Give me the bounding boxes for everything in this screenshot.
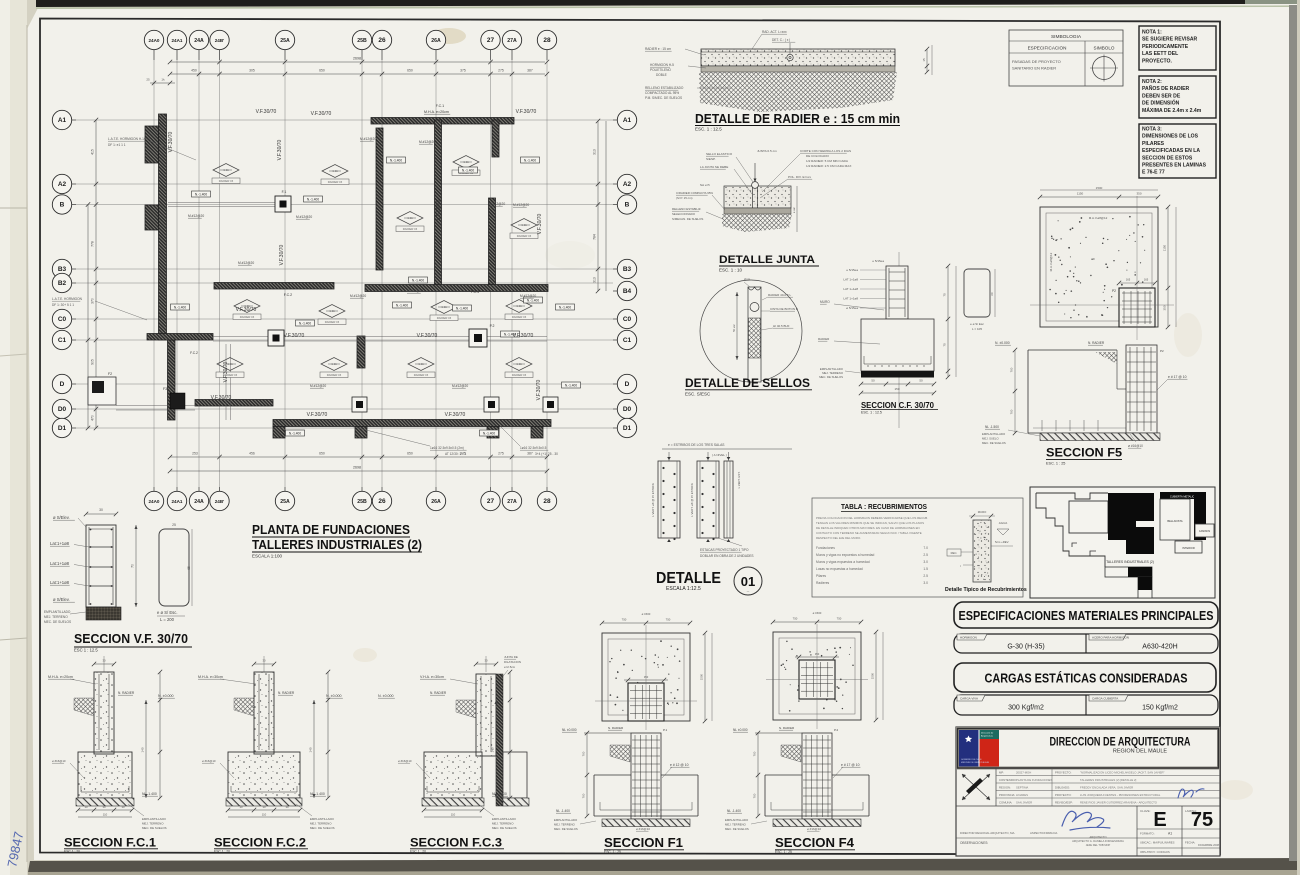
svg-text:P.2: P.2 bbox=[834, 728, 838, 732]
svg-text:B3: B3 bbox=[58, 266, 67, 273]
svg-text:N.-1.400: N.-1.400 bbox=[412, 278, 424, 282]
svg-text:Arquitectura: Arquitectura bbox=[981, 735, 994, 738]
svg-text:SECCION F1: SECCION F1 bbox=[604, 835, 683, 850]
svg-text:253: 253 bbox=[192, 452, 198, 456]
svg-text:S/MECAN. DE SUELOS: S/MECAN. DE SUELOS bbox=[672, 217, 703, 221]
svg-text:ø #16@10: ø #16@10 bbox=[1128, 444, 1143, 448]
svg-text:e var: e var bbox=[792, 207, 796, 213]
svg-text:C0: C0 bbox=[58, 316, 67, 323]
svg-text:140: 140 bbox=[309, 747, 313, 752]
svg-text:M.A.V.ø8@12: M.A.V.ø8@12 bbox=[1089, 216, 1108, 220]
svg-text:CARGA CUBIERTA: CARGA CUBIERTA bbox=[1092, 697, 1118, 701]
svg-text:RADIER 15: RADIER 15 bbox=[219, 179, 234, 183]
svg-text:3+4 (+1) 25 - 30: 3+4 (+1) 25 - 30 bbox=[535, 452, 558, 456]
svg-text:MEJ. TERRENO: MEJ. TERRENO bbox=[725, 823, 747, 827]
svg-text:V.F.30/70: V.F.30/70 bbox=[311, 111, 332, 117]
svg-text:30: 30 bbox=[102, 659, 106, 663]
svg-text:650: 650 bbox=[407, 69, 413, 73]
svg-text:SELLO ELASTICO: SELLO ELASTICO bbox=[706, 152, 733, 156]
svg-text:N.-1.400: N.-1.400 bbox=[565, 383, 577, 387]
svg-text:Muros y vigas expuestos a hume: Muros y vigas expuestos a humedad bbox=[816, 560, 870, 564]
svg-text:V.F.30/70: V.F.30/70 bbox=[307, 412, 328, 418]
svg-text:MP:: MP: bbox=[999, 771, 1004, 775]
svg-text:275: 275 bbox=[498, 452, 504, 456]
svg-text:INTERIOR: INTERIOR bbox=[1182, 546, 1195, 550]
svg-text:DETALLE: DETALLE bbox=[656, 570, 721, 587]
svg-text:PLANTA DE FUNDACIONES: PLANTA DE FUNDACIONES bbox=[252, 522, 410, 537]
svg-text:905: 905 bbox=[91, 359, 95, 365]
svg-text:25B: 25B bbox=[357, 499, 367, 505]
svg-text:SECCION V.F. 30/70: SECCION V.F. 30/70 bbox=[74, 631, 188, 646]
svg-text:D1: D1 bbox=[623, 425, 632, 432]
svg-text:B3: B3 bbox=[623, 266, 632, 273]
svg-text:A1: A1 bbox=[1168, 832, 1172, 836]
svg-text:7.0: 7.0 bbox=[923, 546, 928, 550]
svg-text:DETALLE DE SELLOS: DETALLE DE SELLOS bbox=[685, 378, 810, 390]
svg-text:20027-MOH: 20027-MOH bbox=[1016, 771, 1031, 775]
svg-text:RADIER 40-0.5 L: RADIER 40-0.5 L bbox=[768, 293, 792, 297]
svg-text:REGION:: REGION: bbox=[999, 786, 1011, 790]
svg-text:28: 28 bbox=[543, 37, 551, 44]
svg-text:30: 30 bbox=[121, 805, 125, 809]
svg-text:27: 27 bbox=[487, 498, 495, 505]
svg-text:P.2: P.2 bbox=[490, 324, 495, 328]
svg-text:LAT 1+1ø8: LAT 1+1ø8 bbox=[843, 287, 858, 291]
svg-text:TABLA : RECUBRIMIENTOS: TABLA : RECUBRIMIENTOS bbox=[841, 504, 927, 511]
svg-text:M.#12@20: M.#12@20 bbox=[310, 384, 326, 388]
svg-text:V.H.A. e=30cm: V.H.A. e=30cm bbox=[420, 675, 444, 679]
svg-text:DICIEMBRE 2008: DICIEMBRE 2008 bbox=[1198, 843, 1219, 847]
svg-text:25A: 25A bbox=[280, 38, 290, 44]
svg-text:305: 305 bbox=[249, 69, 255, 73]
svg-text:COMUNA:: COMUNA: bbox=[999, 801, 1012, 805]
svg-text:24A: 24A bbox=[194, 38, 204, 44]
svg-text:26: 26 bbox=[378, 37, 386, 44]
svg-text:ø #16@10: ø #16@10 bbox=[52, 759, 66, 763]
svg-text:N. RADIER: N. RADIER bbox=[1088, 341, 1105, 345]
svg-text:24A: 24A bbox=[194, 499, 204, 505]
svg-text:REC.: REC. bbox=[951, 551, 958, 555]
svg-text:Nst e=5: Nst e=5 bbox=[700, 183, 710, 187]
svg-text:ESC. S/ESC: ESC. S/ESC bbox=[685, 392, 711, 397]
svg-text:DILATACION: DILATACION bbox=[504, 660, 521, 664]
svg-text:DET. C.: ( x ): DET. C.: ( x ) bbox=[772, 38, 790, 42]
svg-text:70: 70 bbox=[131, 564, 135, 568]
svg-text:F.1: F.1 bbox=[282, 190, 287, 194]
svg-text:V.F.30/70: V.F.30/70 bbox=[211, 395, 232, 401]
svg-text:B: B bbox=[625, 202, 630, 209]
svg-text:1.11: 1.11 bbox=[332, 169, 338, 173]
svg-text:27: 27 bbox=[487, 37, 495, 44]
svg-text:MEC. DE SUELOS: MEC. DE SUELOS bbox=[44, 620, 71, 624]
svg-text:EMPLANTILLADO: EMPLANTILLADO bbox=[554, 818, 578, 822]
svg-text:50 var: 50 var bbox=[732, 324, 736, 332]
svg-text:SECCION F.C.1: SECCION F.C.1 bbox=[64, 838, 157, 850]
svg-text:30: 30 bbox=[99, 508, 103, 512]
svg-text:E: E bbox=[1153, 809, 1166, 831]
svg-text:V.F.30/70: V.F.30/70 bbox=[277, 139, 283, 160]
svg-text:COMPACTADO AL 95%: COMPACTADO AL 95% bbox=[645, 91, 679, 95]
svg-text:RADIER 15: RADIER 15 bbox=[328, 180, 343, 184]
svg-text:A2: A2 bbox=[58, 181, 67, 188]
svg-text:150: 150 bbox=[894, 387, 899, 391]
svg-text:D: D bbox=[625, 381, 630, 388]
svg-text:e ø S/ Esc: e ø S/ Esc bbox=[970, 322, 984, 326]
svg-text:L.A.T.E. HORMIGON: L.A.T.E. HORMIGON bbox=[52, 297, 83, 301]
svg-text:RADIER 15: RADIER 15 bbox=[414, 373, 429, 377]
svg-text:D1: D1 bbox=[58, 425, 67, 432]
svg-text:OBSERVACIONES:: OBSERVACIONES: bbox=[960, 841, 988, 845]
svg-text:24A1: 24A1 bbox=[172, 499, 183, 504]
svg-text:LAT 1+1ø8: LAT 1+1ø8 bbox=[843, 297, 858, 301]
svg-text:ø #16@10: ø #16@10 bbox=[398, 759, 412, 763]
svg-text:M.#12@20: M.#12@20 bbox=[350, 294, 366, 298]
svg-text:RADIER 15: RADIER 15 bbox=[517, 234, 532, 238]
svg-text:RADIER 15: RADIER 15 bbox=[512, 315, 527, 319]
svg-text:G-30 (H-35): G-30 (H-35) bbox=[1007, 644, 1044, 651]
svg-text:1.11: 1.11 bbox=[331, 362, 337, 366]
svg-text:V.F.30/70: V.F.30/70 bbox=[445, 412, 466, 418]
svg-text:LA JUNTA SE DEBE: LA JUNTA SE DEBE bbox=[700, 165, 728, 169]
svg-text:750: 750 bbox=[793, 617, 798, 621]
svg-text:NOTA 1:: NOTA 1: bbox=[1142, 30, 1162, 36]
svg-text:165: 165 bbox=[1126, 278, 1131, 282]
svg-text:150 Kgf/m2: 150 Kgf/m2 bbox=[1142, 705, 1178, 712]
svg-text:LUIS JORQUERA FUENTES - PROFES: LUIS JORQUERA FUENTES - PROFESIONES ESTR… bbox=[1080, 793, 1161, 797]
svg-text:e 5/15ea: e 5/15ea bbox=[872, 259, 884, 263]
svg-text:70: 70 bbox=[943, 293, 947, 297]
svg-text:SECCION F5: SECCION F5 bbox=[1046, 446, 1122, 460]
svg-text:RADIER: RADIER bbox=[818, 337, 830, 341]
svg-text:N. ±0.000: N. ±0.000 bbox=[158, 694, 174, 698]
svg-text:ø #16@10: ø #16@10 bbox=[636, 827, 650, 831]
svg-text:D: D bbox=[60, 381, 65, 388]
svg-text:P.M. S/MEC. DE SUELOS: P.M. S/MEC. DE SUELOS bbox=[645, 96, 682, 100]
svg-text:1.11: 1.11 bbox=[463, 160, 469, 164]
svg-text:DF 1: 30+ 5 1 1: DF 1: 30+ 5 1 1 bbox=[52, 303, 74, 307]
svg-text:ø S/Elev.: ø S/Elev. bbox=[53, 597, 70, 602]
svg-text:MEJ. TERRENO: MEJ. TERRENO bbox=[554, 823, 576, 827]
svg-text:ESC. 1 : 12.5: ESC. 1 : 12.5 bbox=[695, 127, 722, 132]
svg-text:SECCION C.F. 30/70: SECCION C.F. 30/70 bbox=[861, 401, 935, 410]
svg-text:RENE RIOS JAVIER GUTIERREZ ARA: RENE RIOS JAVIER GUTIERREZ ARAVENA - ARQ… bbox=[1080, 801, 1158, 805]
svg-text:Muros y vigas no expuestos a h: Muros y vigas no expuestos a humedad bbox=[816, 553, 874, 557]
svg-text:HI 40.5 BUF: HI 40.5 BUF bbox=[773, 324, 790, 328]
svg-text:24B': 24B' bbox=[215, 38, 225, 43]
svg-text:N.-1.400: N.-1.400 bbox=[289, 431, 301, 435]
svg-text:NL -1.500: NL -1.500 bbox=[985, 425, 999, 429]
svg-text:1150: 1150 bbox=[1163, 244, 1167, 251]
svg-text:UBICAC.: MAIPU/LINARES: UBICAC.: MAIPU/LINARES bbox=[1140, 841, 1175, 845]
svg-text:HORMIGON: HORMIGON bbox=[960, 636, 977, 640]
svg-text:700: 700 bbox=[582, 751, 586, 756]
svg-text:ø #16@10: ø #16@10 bbox=[807, 827, 821, 831]
svg-text:e # 17 @ 10: e # 17 @ 10 bbox=[1168, 375, 1187, 379]
svg-text:N. RADIER: N. RADIER bbox=[779, 726, 795, 730]
svg-text:N. ±0.000: N. ±0.000 bbox=[378, 694, 394, 698]
svg-text:MEC. DE SUELOS: MEC. DE SUELOS bbox=[142, 826, 167, 830]
svg-text:RELLENO ESTABILIZADO: RELLENO ESTABILIZADO bbox=[645, 86, 684, 90]
svg-text:PASADAS DE PROYECTO: PASADAS DE PROYECTO bbox=[1012, 59, 1061, 64]
svg-text:NL -1.400: NL -1.400 bbox=[556, 809, 570, 813]
svg-text:1ø16 32.5x9.5x0.5 (2m): 1ø16 32.5x9.5x0.5 (2m) bbox=[430, 446, 464, 450]
svg-text:140: 140 bbox=[141, 747, 145, 752]
svg-text:M.H.A. e=20cm: M.H.A. e=20cm bbox=[48, 675, 73, 679]
svg-text:B: B bbox=[60, 202, 65, 209]
svg-text:470: 470 bbox=[91, 415, 95, 421]
svg-text:M.#12@20: M.#12@20 bbox=[188, 214, 204, 218]
svg-text:50: 50 bbox=[871, 379, 875, 383]
svg-text:TALLERES INDUSTRIALES (2) [DET: TALLERES INDUSTRIALES (2) [DETALLE 2] bbox=[1080, 778, 1137, 782]
svg-text:(S/ P. 15 cm): (S/ P. 15 cm) bbox=[676, 196, 693, 200]
svg-text:700: 700 bbox=[1010, 409, 1014, 414]
svg-text:DE DETALLE INDIQUEN OTROS: DE DETALLE INDIQUEN OTROS MAYORES. EN CA… bbox=[816, 526, 920, 530]
svg-text:M.#12@20: M.#12@20 bbox=[407, 289, 423, 293]
svg-text:DIRECTOR REGIONAL ARQUITECTO,: DIRECTOR REGIONAL ARQUITECTO, MA. bbox=[960, 831, 1015, 835]
svg-text:PAÑOS DE RADIER: PAÑOS DE RADIER bbox=[1142, 85, 1189, 92]
svg-text:50: 50 bbox=[919, 379, 923, 383]
svg-text:N.-1.400: N.-1.400 bbox=[396, 303, 408, 307]
svg-text:MEC. DE SUELOS: MEC. DE SUELOS bbox=[492, 826, 517, 830]
svg-text:26A: 26A bbox=[431, 38, 441, 44]
svg-text:275: 275 bbox=[498, 69, 504, 73]
svg-text:LAS EETT DEL: LAS EETT DEL bbox=[1142, 51, 1178, 57]
svg-text:24A1: 24A1 bbox=[172, 38, 183, 43]
svg-text:L = 105: L = 105 bbox=[972, 327, 982, 331]
svg-text:E 76-E 77: E 76-E 77 bbox=[1142, 170, 1165, 176]
svg-text:ESC. 1 : 12.5: ESC. 1 : 12.5 bbox=[861, 411, 882, 415]
svg-text:30: 30 bbox=[84, 805, 88, 809]
svg-text:TALLERES INDUSTRIALES (2): TALLERES INDUSTRIALES (2) bbox=[1106, 560, 1154, 564]
svg-text:RADIER 15: RADIER 15 bbox=[403, 227, 418, 231]
svg-text:MEC. DE SUELOS: MEC. DE SUELOS bbox=[310, 826, 335, 830]
svg-text:PLANTA DE FUNDACIONES: PLANTA DE FUNDACIONES bbox=[1016, 778, 1052, 782]
svg-text:PREVIA COLOCACION DEL HORMI: PREVIA COLOCACION DEL HORMIGON DEBERA VE… bbox=[816, 516, 928, 520]
svg-text:CARGA VIVA: CARGA VIVA bbox=[960, 697, 978, 701]
svg-text:SEPTIMA: SEPTIMA bbox=[1016, 786, 1028, 790]
svg-text:CORTE CON SIERRA A LOS 2 DIAS: CORTE CON SIERRA A LOS 2 DIAS bbox=[800, 149, 851, 153]
svg-text:NOTA 3:: NOTA 3: bbox=[1142, 127, 1162, 133]
svg-text:RAD. ACT. L=xxx: RAD. ACT. L=xxx bbox=[762, 30, 787, 34]
svg-text:C/RADIER COMPACTA 95%: C/RADIER COMPACTA 95% bbox=[676, 191, 713, 195]
svg-text:NL ±0.000: NL ±0.000 bbox=[562, 728, 577, 732]
svg-text:F3: F3 bbox=[163, 387, 167, 391]
svg-text:TENGAN LOS VALORES MINIMOS: TENGAN LOS VALORES MINIMOS QUE SE INDICA… bbox=[816, 521, 924, 525]
svg-text:PRESENTES EN LAMINAS: PRESENTES EN LAMINAS bbox=[1142, 163, 1207, 169]
svg-text:M.#12@20: M.#12@20 bbox=[419, 140, 435, 144]
svg-text:S/ESP.: S/ESP. bbox=[706, 157, 716, 161]
svg-text:450: 450 bbox=[191, 69, 197, 73]
svg-text:MEJ. TERRENO: MEJ. TERRENO bbox=[310, 822, 332, 826]
svg-text:456: 456 bbox=[249, 452, 255, 456]
svg-text:110: 110 bbox=[451, 813, 456, 817]
svg-text:F2: F2 bbox=[108, 372, 112, 376]
svg-text:RADIER 15: RADIER 15 bbox=[327, 373, 342, 377]
svg-text:M.#12@20: M.#12@20 bbox=[489, 202, 505, 206]
svg-text:M.#12@20: M.#12@20 bbox=[296, 215, 312, 219]
svg-text:ESC 1 : 12.5: ESC 1 : 12.5 bbox=[74, 648, 98, 653]
svg-text:M.A.V.ø8@12: M.A.V.ø8@12 bbox=[1049, 252, 1053, 271]
svg-text:NL -1.400: NL -1.400 bbox=[142, 792, 157, 796]
svg-text:CONTENIDO:: CONTENIDO: bbox=[999, 778, 1017, 782]
svg-text:30: 30 bbox=[262, 805, 266, 809]
svg-text:e=2.5cm: e=2.5cm bbox=[504, 665, 516, 669]
svg-text:CINTA DE BOTON B: CINTA DE BOTON B bbox=[770, 307, 798, 311]
svg-text:RESPECTO DEL EJE DEL MURO.: RESPECTO DEL EJE DEL MURO. bbox=[816, 536, 861, 540]
svg-text:MEC. DE SUELOS: MEC. DE SUELOS bbox=[819, 375, 843, 379]
svg-text:ARQUITECTO: ARQUITECTO bbox=[1090, 835, 1107, 839]
svg-text:30: 30 bbox=[102, 805, 106, 809]
svg-text:F.C.2: F.C.2 bbox=[284, 293, 292, 297]
svg-text:350: 350 bbox=[644, 675, 649, 679]
svg-text:24A0: 24A0 bbox=[149, 38, 160, 43]
svg-text:1500: 1500 bbox=[1096, 186, 1103, 190]
svg-text:3.0: 3.0 bbox=[923, 581, 928, 585]
svg-text:TALLERES INDUSTRIALES (2): TALLERES INDUSTRIALES (2) bbox=[252, 537, 422, 552]
svg-text:V.F.30/70: V.F.30/70 bbox=[537, 213, 543, 234]
svg-text:REVISO/ESP:: REVISO/ESP: bbox=[1055, 801, 1073, 805]
svg-text:N.-1.400: N.-1.400 bbox=[527, 298, 539, 302]
svg-text:NL ±0.000: NL ±0.000 bbox=[733, 728, 748, 732]
svg-text:RADIER 15: RADIER 15 bbox=[325, 320, 340, 324]
svg-text:1.11: 1.11 bbox=[521, 223, 527, 227]
svg-text:ø #16@10: ø #16@10 bbox=[202, 759, 216, 763]
svg-text:LINARES: LINARES bbox=[1016, 793, 1028, 797]
svg-text:DEBEN SER DE: DEBEN SER DE bbox=[1142, 93, 1181, 99]
svg-text:C1: C1 bbox=[623, 337, 632, 344]
svg-text:25B: 25B bbox=[357, 38, 367, 44]
svg-text:B2: B2 bbox=[58, 280, 67, 287]
svg-text:1500: 1500 bbox=[700, 673, 704, 680]
svg-text:NL -1.400: NL -1.400 bbox=[727, 809, 741, 813]
svg-text:DOBLE: DOBLE bbox=[656, 73, 667, 77]
svg-text:784: 784 bbox=[593, 234, 597, 240]
svg-text:JEFE DEL TOB MOP: JEFE DEL TOB MOP bbox=[1086, 843, 1111, 847]
svg-text:1.5: 1.5 bbox=[923, 567, 928, 571]
svg-text:C1: C1 bbox=[58, 337, 67, 344]
svg-text:ø 1500: ø 1500 bbox=[813, 611, 822, 615]
svg-text:SAN JAVIER: SAN JAVIER bbox=[1016, 801, 1032, 805]
svg-text:DETALLE JUNTA: DETALLE JUNTA bbox=[719, 254, 815, 266]
svg-text:e # 17 @ 10: e # 17 @ 10 bbox=[841, 763, 860, 767]
svg-text:RADIER 15: RADIER 15 bbox=[512, 373, 527, 377]
svg-text:CAMINOS: CAMINOS bbox=[1199, 530, 1211, 533]
svg-text:28: 28 bbox=[543, 498, 551, 505]
svg-text:MINISTERIO DE OBRAS PUBLICAS: MINISTERIO DE OBRAS PUBLICAS bbox=[961, 761, 990, 764]
svg-text:SECCION DE ESTOS: SECCION DE ESTOS bbox=[1142, 155, 1193, 161]
svg-text:ASPECTO/FIRMA DA.: ASPECTO/FIRMA DA. bbox=[1030, 831, 1058, 835]
svg-text:OBS./PROY. CODIGOS: OBS./PROY. CODIGOS bbox=[1140, 850, 1170, 854]
svg-text:300 Kgf/m2: 300 Kgf/m2 bbox=[1008, 705, 1044, 712]
svg-text:FECHA:: FECHA: bbox=[1185, 841, 1195, 845]
svg-text:700: 700 bbox=[753, 793, 757, 798]
svg-text:1ø16 32.5x9.5x0.5: 1ø16 32.5x9.5x0.5 bbox=[520, 446, 547, 450]
svg-text:24A0: 24A0 bbox=[149, 499, 160, 504]
svg-text:NL -1.400: NL -1.400 bbox=[310, 792, 325, 796]
svg-text:27A: 27A bbox=[507, 499, 517, 505]
svg-text:N.-1.400: N.-1.400 bbox=[307, 197, 319, 201]
svg-text:N. RADIER: N. RADIER bbox=[118, 691, 135, 695]
svg-text:V.F.30/70: V.F.30/70 bbox=[436, 199, 442, 220]
svg-text:V.F.30/70: V.F.30/70 bbox=[284, 333, 305, 339]
svg-text:DE COLOCADO: DE COLOCADO bbox=[806, 154, 829, 158]
svg-text:PERIODICAMENTE: PERIODICAMENTE bbox=[1142, 44, 1189, 50]
svg-text:MÁXIMA DE 2.4m x 2.4m: MÁXIMA DE 2.4m x 2.4m bbox=[1142, 107, 1202, 114]
svg-text:DIMENSIONES DE LOS: DIMENSIONES DE LOS bbox=[1142, 134, 1199, 140]
svg-text:DIRECCION DE ARQUITECTURA: DIRECCION DE ARQUITECTURA bbox=[1050, 737, 1191, 749]
svg-text:M.#12@20: M.#12@20 bbox=[452, 384, 468, 388]
svg-text:( A NIVEL ): ( A NIVEL ) bbox=[712, 453, 727, 457]
svg-text:N.-1.400: N.-1.400 bbox=[483, 431, 495, 435]
svg-text:M.#12@20: M.#12@20 bbox=[513, 203, 529, 207]
svg-text:700: 700 bbox=[1010, 367, 1014, 372]
svg-text:P2: P2 bbox=[1112, 289, 1116, 293]
svg-text:SECCION F4: SECCION F4 bbox=[775, 835, 855, 850]
svg-text:75: 75 bbox=[1191, 809, 1213, 831]
svg-text:165: 165 bbox=[1144, 278, 1149, 282]
svg-text:Lat:1+1ø8: Lat:1+1ø8 bbox=[50, 561, 70, 566]
svg-text:25A: 25A bbox=[280, 499, 290, 505]
svg-text:1.11: 1.11 bbox=[407, 216, 413, 220]
svg-text:350: 350 bbox=[1136, 192, 1141, 196]
svg-text:M.#12@20: M.#12@20 bbox=[360, 137, 376, 141]
svg-text:AGUA: AGUA bbox=[999, 521, 1008, 525]
svg-text:FORMATO:: FORMATO: bbox=[1140, 832, 1155, 836]
svg-text:30: 30 bbox=[484, 659, 488, 663]
svg-text:V.F.30/70: V.F.30/70 bbox=[279, 244, 285, 265]
svg-text:EMPLANTILLADO: EMPLANTILLADO bbox=[492, 817, 517, 821]
svg-text:ESC. 1 : 10: ESC. 1 : 10 bbox=[719, 268, 743, 273]
svg-text:MEC. DE SUELOS: MEC. DE SUELOS bbox=[554, 827, 578, 831]
svg-text:CUBIERTA METALICA: CUBIERTA METALICA bbox=[1170, 495, 1197, 499]
svg-text:SIMBOLO: SIMBOLO bbox=[1094, 46, 1115, 51]
svg-text:N. RADIER: N. RADIER bbox=[278, 691, 295, 695]
svg-text:SECCION F.C.2: SECCION F.C.2 bbox=[214, 838, 306, 850]
svg-text:ESTACAS PROYECTADO 1 TIPO: ESTACAS PROYECTADO 1 TIPO bbox=[700, 548, 749, 552]
svg-text:PROYECTO:: PROYECTO: bbox=[1055, 771, 1072, 775]
svg-text:313: 313 bbox=[593, 277, 597, 283]
svg-text:e = ESTRIBOS DE LOS TRES SALAS: e = ESTRIBOS DE LOS TRES SALAS bbox=[668, 443, 725, 447]
svg-text:15: 15 bbox=[922, 58, 926, 62]
svg-text:415: 415 bbox=[91, 149, 95, 155]
svg-text:M.#12@20: M.#12@20 bbox=[520, 294, 536, 298]
svg-text:L.A.T.E. HORMIGON H-10: L.A.T.E. HORMIGON H-10 bbox=[108, 137, 146, 141]
svg-text:MURO: MURO bbox=[978, 510, 987, 514]
svg-text:MEJ. TERRENO: MEJ. TERRENO bbox=[44, 615, 68, 619]
svg-text:e 5/15ea: e 5/15ea bbox=[846, 268, 858, 272]
svg-text:N. ±0.000: N. ±0.000 bbox=[326, 694, 342, 698]
svg-text:1500: 1500 bbox=[871, 672, 875, 679]
svg-text:N.-1.400: N.-1.400 bbox=[174, 305, 186, 309]
svg-text:Dirección de: Dirección de bbox=[981, 732, 994, 735]
svg-text:C0: C0 bbox=[623, 316, 632, 323]
svg-text:NOTA 2:: NOTA 2: bbox=[1142, 79, 1162, 85]
svg-text:ESC. 1 : 25: ESC. 1 : 25 bbox=[604, 850, 621, 854]
svg-text:N. RADIER: N. RADIER bbox=[608, 726, 624, 730]
svg-text:778: 778 bbox=[91, 241, 95, 247]
svg-text:BELLAVISTA: BELLAVISTA bbox=[1167, 519, 1182, 523]
svg-text:350: 350 bbox=[1163, 305, 1167, 310]
svg-text:700: 700 bbox=[753, 751, 757, 756]
svg-text:SIMBOLOGIA: SIMBOLOGIA bbox=[1051, 34, 1082, 40]
svg-text:SE SUGIERE REVISAR: SE SUGIERE REVISAR bbox=[1142, 37, 1198, 43]
svg-text:30: 30 bbox=[262, 659, 266, 663]
svg-text:110: 110 bbox=[262, 813, 267, 817]
svg-text:V.F.30/70: V.F.30/70 bbox=[223, 361, 229, 382]
svg-text:ESC 1 : 20: ESC 1 : 20 bbox=[64, 849, 80, 853]
svg-text:r: r bbox=[960, 564, 961, 568]
svg-text:650: 650 bbox=[407, 452, 413, 456]
